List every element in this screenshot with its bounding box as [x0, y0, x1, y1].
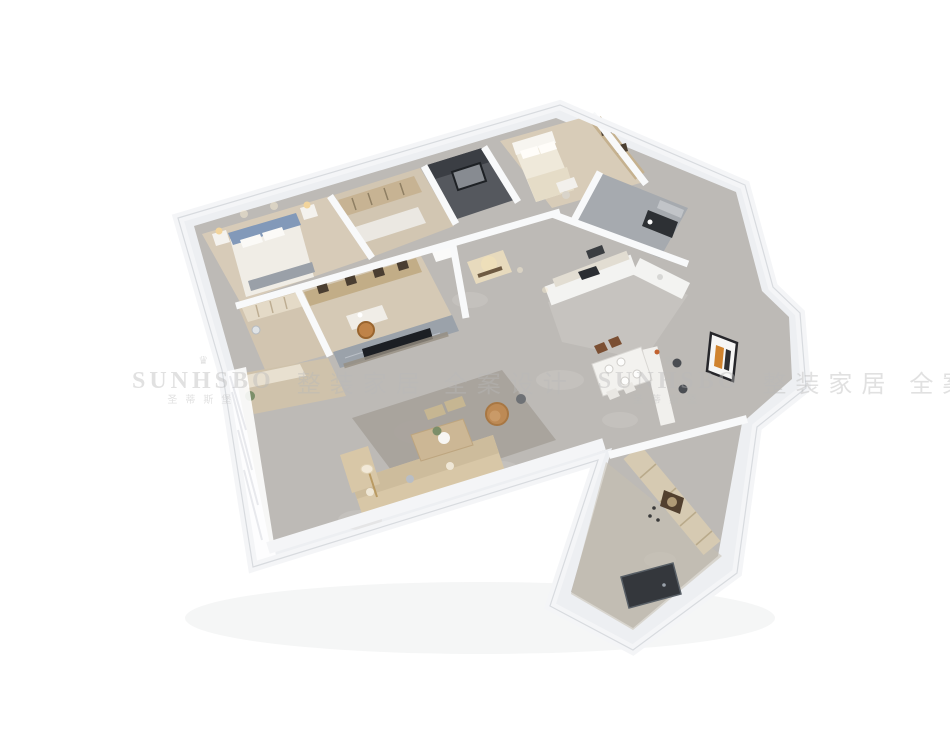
- niche-light: [667, 497, 677, 507]
- sofa-pillow: [446, 462, 454, 470]
- sofa-pillow: [366, 488, 374, 496]
- vanity-mirror: [252, 326, 260, 334]
- floorplan-page: ♛ SUNHSBO 圣蒂斯堡 整装家居 全案设计 ♛ SUNHSBO 圣蒂斯堡 …: [0, 0, 950, 733]
- side-table: [516, 394, 526, 404]
- fruit-bowl: [655, 350, 660, 355]
- desk-chair: [562, 191, 570, 199]
- bar-stool: [679, 385, 688, 394]
- desk-paper: [358, 313, 363, 318]
- table-lamp: [216, 228, 223, 235]
- table-lamp: [304, 202, 311, 209]
- sink: [657, 274, 663, 280]
- towel: [648, 220, 653, 225]
- floorplan-render: [0, 0, 950, 733]
- table-plant: [433, 427, 442, 436]
- door-handle: [662, 583, 666, 587]
- bar-stool: [673, 359, 682, 368]
- sofa-pillow: [406, 475, 414, 483]
- floor-lamp-shade: [361, 465, 373, 474]
- office-chair: [358, 322, 374, 338]
- armchair-cushion: [490, 411, 501, 422]
